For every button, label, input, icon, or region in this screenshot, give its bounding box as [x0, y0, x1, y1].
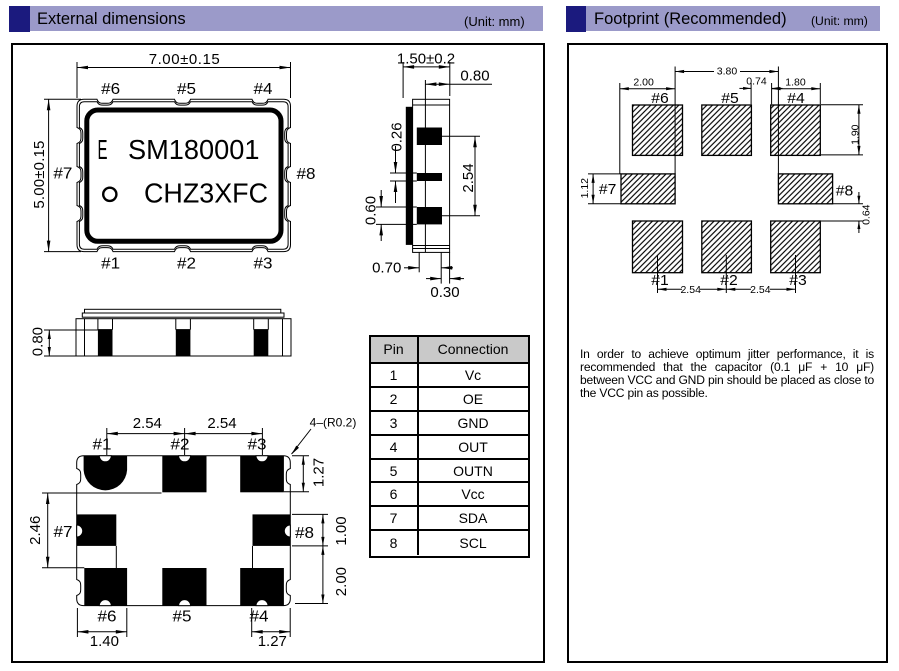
svg-text:2.54: 2.54 — [680, 284, 701, 296]
svg-text:2.54: 2.54 — [750, 284, 771, 296]
svg-text:0.64: 0.64 — [860, 204, 872, 225]
svg-text:1.80: 1.80 — [785, 77, 806, 89]
svg-text:0.74: 0.74 — [746, 76, 767, 88]
svg-text:1.12: 1.12 — [579, 178, 591, 199]
svg-text:3.80: 3.80 — [717, 66, 738, 78]
svg-text:1.90: 1.90 — [849, 124, 861, 145]
svg-text:#3: #3 — [789, 272, 807, 289]
svg-text:#4: #4 — [787, 90, 805, 107]
svg-text:#6: #6 — [651, 90, 669, 107]
svg-text:#1: #1 — [651, 272, 669, 289]
svg-text:#2: #2 — [720, 272, 738, 289]
svg-text:#8: #8 — [836, 183, 854, 200]
svg-text:#5: #5 — [721, 90, 739, 107]
svg-text:#7: #7 — [599, 181, 617, 198]
svg-text:2.00: 2.00 — [633, 77, 654, 89]
